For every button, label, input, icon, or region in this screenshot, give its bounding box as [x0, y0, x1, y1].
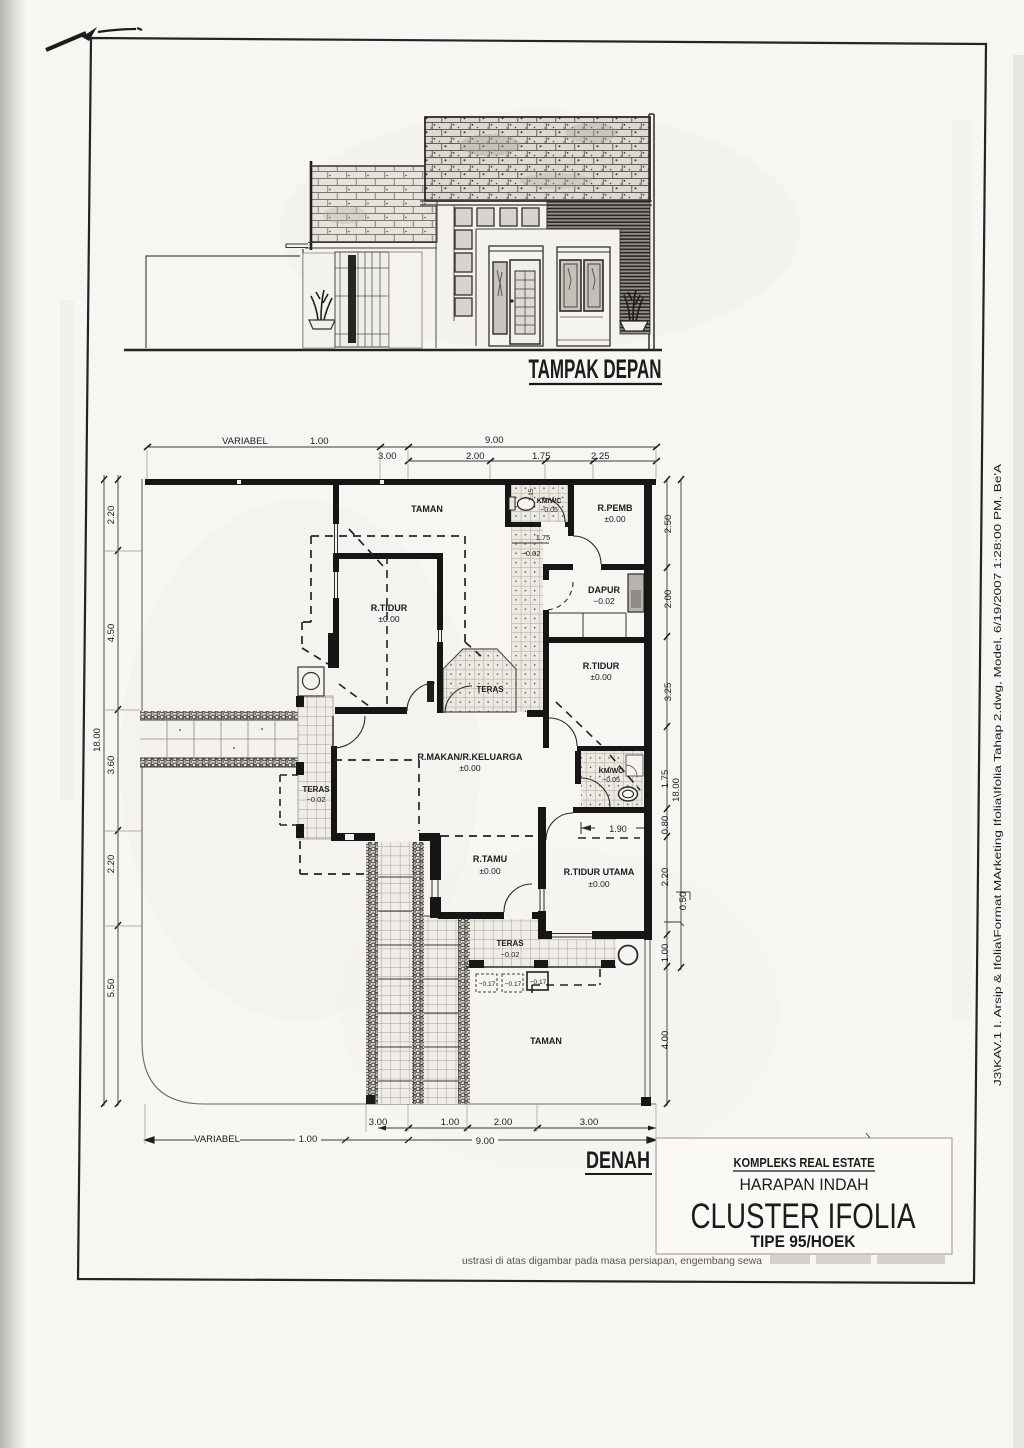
- svg-text:−0.17: −0.17: [505, 981, 522, 988]
- svg-text:±0.00: ±0.00: [604, 514, 625, 524]
- svg-text:2.20: 2.20: [106, 506, 117, 525]
- svg-text:1.00: 1.00: [441, 1117, 460, 1128]
- svg-text:KM/WC: KM/WC: [537, 498, 562, 505]
- svg-text:1.90: 1.90: [609, 824, 627, 834]
- svg-text:0.80: 0.80: [660, 816, 671, 835]
- svg-text:±0.00: ±0.00: [588, 879, 609, 889]
- svg-text:KM/WC: KM/WC: [599, 768, 624, 775]
- svg-text:2.00: 2.00: [494, 1117, 513, 1128]
- svg-text:0.50: 0.50: [678, 892, 689, 911]
- svg-text:1.00: 1.00: [660, 944, 671, 963]
- svg-text:VARIABEL: VARIABEL: [222, 436, 268, 447]
- svg-text:3.00: 3.00: [580, 1117, 599, 1128]
- svg-text:−0.02: −0.02: [593, 596, 615, 606]
- svg-text:4.50: 4.50: [106, 624, 117, 643]
- svg-text:TAMAN: TAMAN: [530, 1036, 562, 1046]
- svg-text:R.PEMB: R.PEMB: [597, 503, 633, 513]
- svg-text:R.MAKAN/R.KELUARGA: R.MAKAN/R.KELUARGA: [418, 752, 523, 762]
- svg-text:18.00: 18.00: [671, 778, 682, 802]
- svg-text:TIPE 95/HOEK: TIPE 95/HOEK: [751, 1232, 857, 1251]
- svg-text:3.00: 3.00: [369, 1117, 388, 1128]
- svg-text:R.TIDUR: R.TIDUR: [583, 661, 620, 671]
- svg-text:TERAS: TERAS: [302, 785, 330, 794]
- svg-text:2.25: 2.25: [591, 451, 610, 462]
- svg-text:2.20: 2.20: [106, 855, 117, 874]
- svg-text:−0.02: −0.02: [501, 950, 520, 959]
- svg-text:DENAH: DENAH: [586, 1147, 650, 1174]
- svg-text:9.00: 9.00: [476, 1136, 495, 1147]
- svg-text:2.20: 2.20: [660, 868, 671, 887]
- svg-text:J3\KAV.1 I. Arsip & Ifolia\For: J3\KAV.1 I. Arsip & Ifolia\Format MArket…: [992, 464, 1004, 1086]
- svg-text:DAPUR: DAPUR: [588, 585, 621, 595]
- svg-text:R.TIDUR UTAMA: R.TIDUR UTAMA: [564, 867, 635, 877]
- svg-text:TERAS: TERAS: [496, 939, 524, 948]
- svg-text:TERAS: TERAS: [476, 685, 504, 694]
- svg-text:1.75: 1.75: [536, 533, 551, 542]
- svg-text:1.00: 1.00: [310, 436, 329, 447]
- svg-text:5.50: 5.50: [106, 979, 117, 998]
- svg-text:2.00: 2.00: [663, 590, 674, 609]
- svg-text:−0.05: −0.05: [540, 507, 558, 514]
- svg-text:3.00: 3.00: [378, 451, 397, 462]
- svg-text:±0.00: ±0.00: [378, 614, 399, 624]
- svg-text:3.60: 3.60: [106, 756, 117, 775]
- svg-text:±0.00: ±0.00: [590, 672, 611, 682]
- svg-text:−0.17: −0.17: [479, 981, 496, 988]
- svg-text:TAMPAK DEPAN: TAMPAK DEPAN: [529, 354, 662, 384]
- svg-text:−0.02: −0.02: [522, 549, 541, 558]
- svg-text:4.00: 4.00: [660, 1031, 671, 1050]
- svg-text:3.25: 3.25: [663, 683, 674, 702]
- svg-text:1.75: 1.75: [660, 770, 671, 789]
- svg-text:±0.00: ±0.00: [459, 763, 480, 773]
- svg-text:R.TIDUR: R.TIDUR: [371, 603, 408, 613]
- svg-text:2.50: 2.50: [663, 515, 674, 534]
- svg-text:TAMAN: TAMAN: [411, 504, 443, 514]
- svg-text:−0.02: −0.02: [307, 795, 326, 804]
- svg-text:18.00: 18.00: [92, 728, 103, 752]
- svg-text:1.75: 1.75: [532, 451, 551, 462]
- svg-text:CLUSTER IFOLIA: CLUSTER IFOLIA: [691, 1197, 917, 1236]
- svg-text:2.00: 2.00: [466, 451, 485, 462]
- svg-text:±0.00: ±0.00: [479, 866, 500, 876]
- svg-text:1.15: 1.15: [528, 488, 535, 501]
- svg-text:VARIABEL: VARIABEL: [194, 1134, 240, 1145]
- svg-text:1.00: 1.00: [299, 1134, 318, 1145]
- svg-text:9.00: 9.00: [485, 435, 504, 446]
- svg-text:KOMPLEKS REAL ESTATE: KOMPLEKS REAL ESTATE: [734, 1155, 875, 1170]
- svg-text:HARAPAN INDAH: HARAPAN INDAH: [740, 1175, 869, 1194]
- svg-text:ustrasi di atas digambar pada: ustrasi di atas digambar pada masa persi…: [462, 1255, 762, 1267]
- svg-text:R.TAMU: R.TAMU: [473, 854, 507, 864]
- svg-text:−0.05: −0.05: [602, 777, 620, 784]
